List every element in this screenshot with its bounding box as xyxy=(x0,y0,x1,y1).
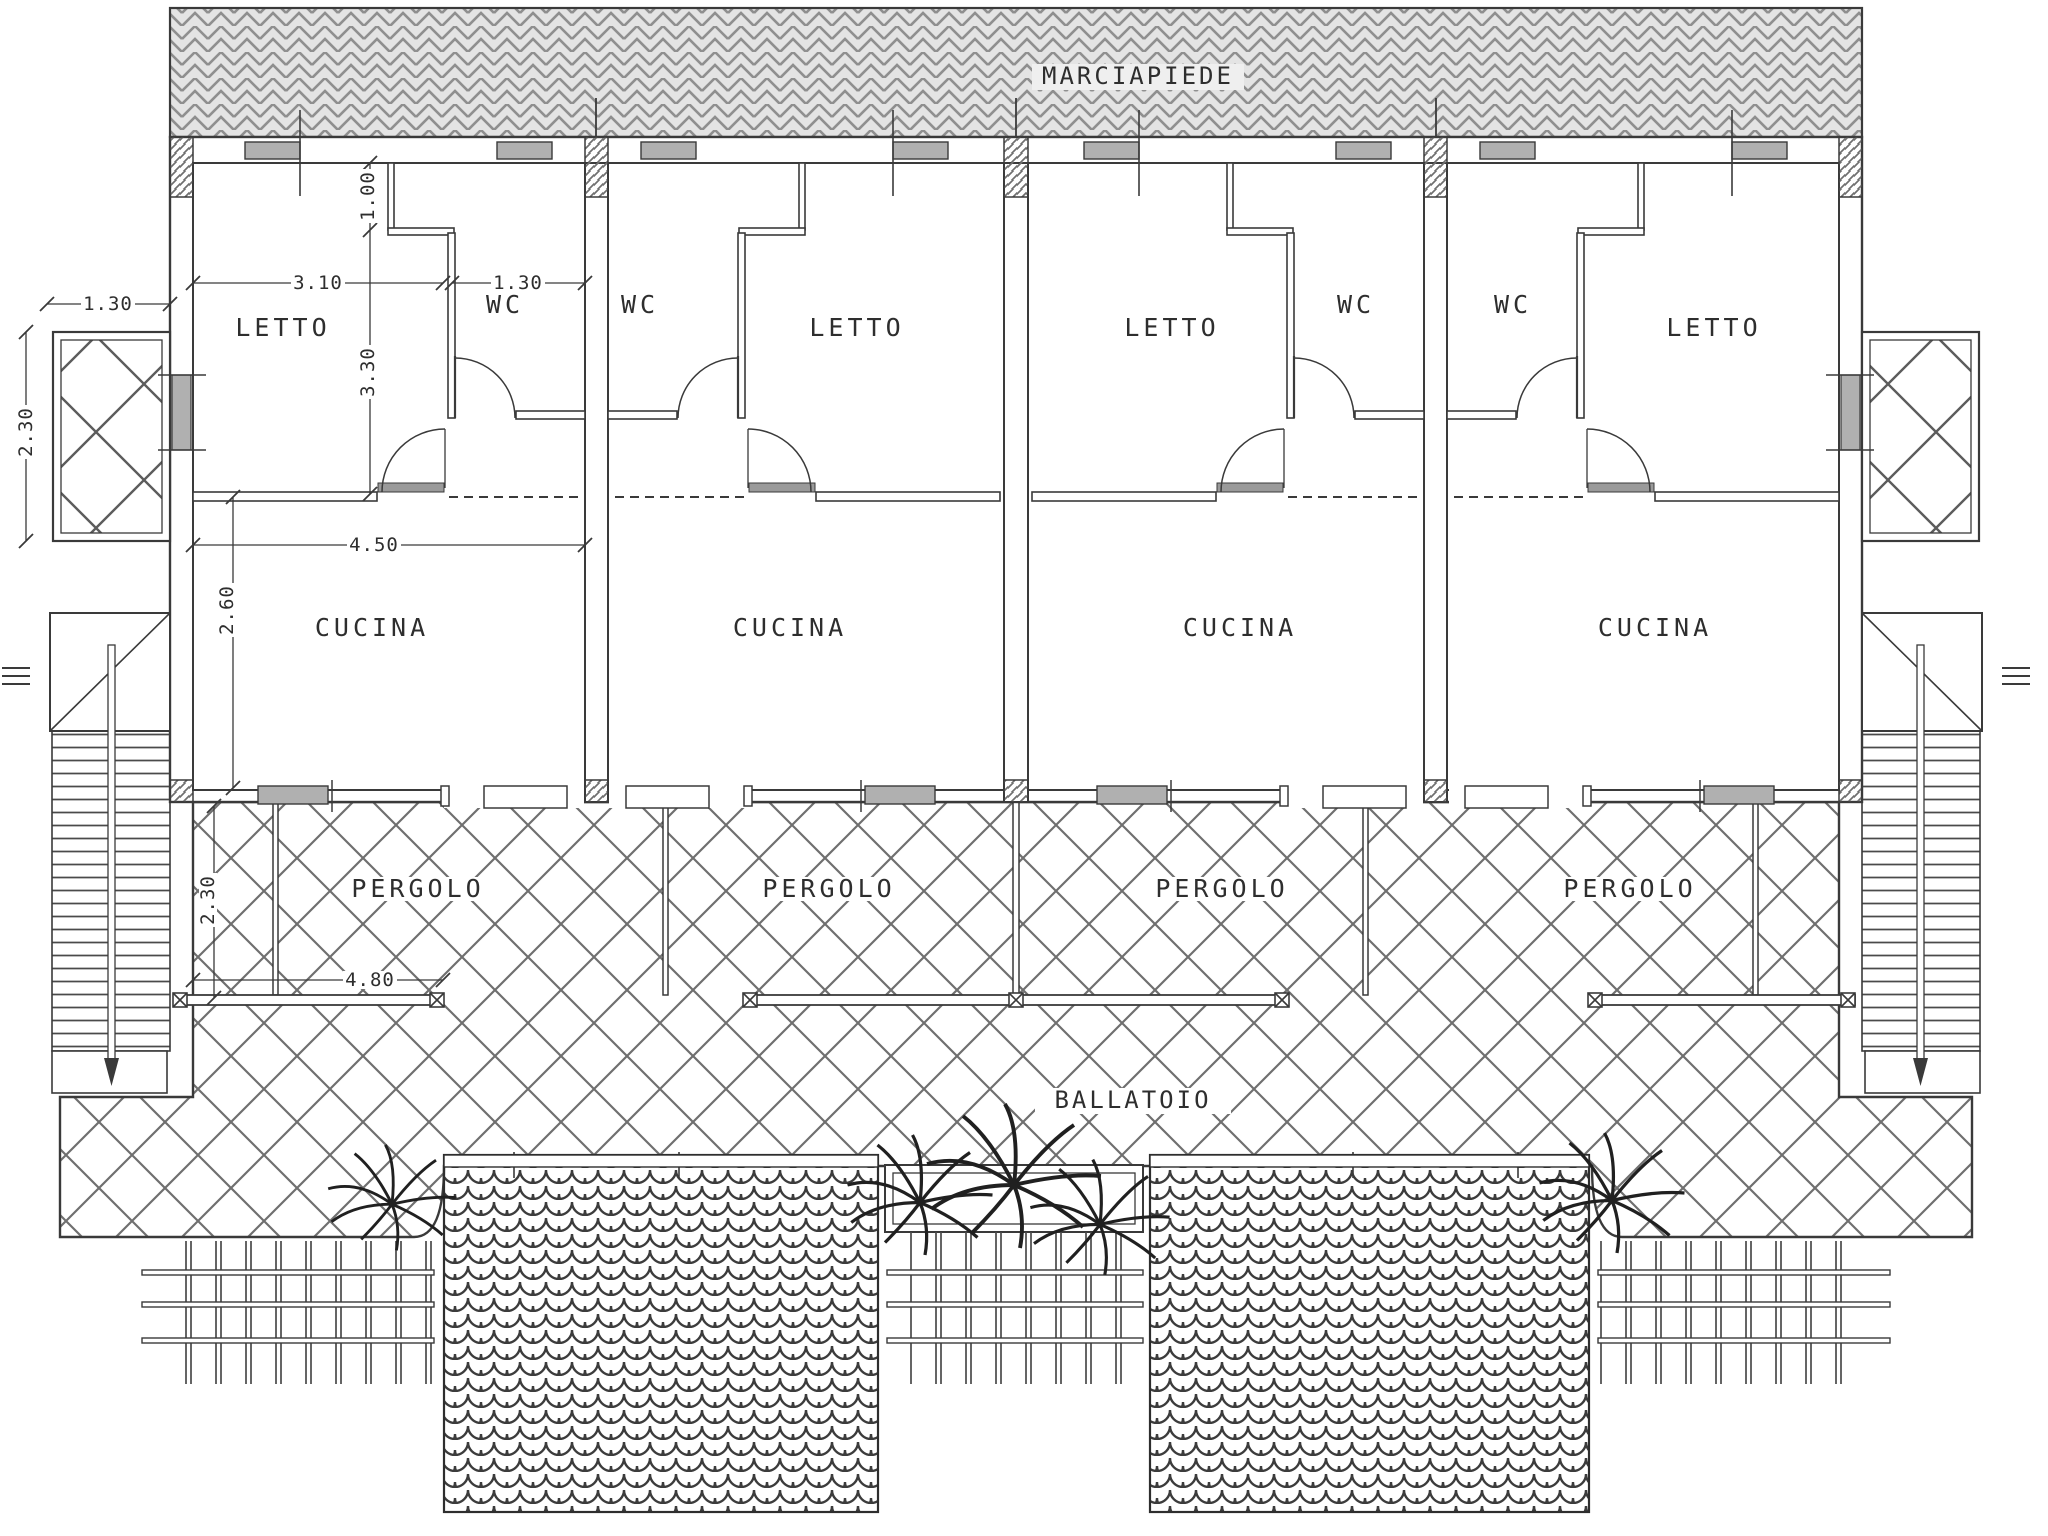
tile-roof-right-edge xyxy=(1150,1155,1589,1167)
party-wall xyxy=(585,163,608,802)
dim-cucina-depth: 2.60 xyxy=(216,585,238,635)
party-wall xyxy=(1424,163,1447,802)
cucina-label-unit-4: CUCINA xyxy=(1598,613,1712,642)
ballatoio-label: BALLATOIO xyxy=(1054,1086,1211,1114)
cucina-label-unit-3: CUCINA xyxy=(1183,613,1297,642)
tile-roof-right xyxy=(1150,1155,1589,1512)
dim-letto-depth: 3.30 xyxy=(357,347,379,397)
cucina-label-unit-1: CUCINA xyxy=(315,613,429,642)
letto-label-unit-2: LETTO xyxy=(809,313,904,342)
party-wall xyxy=(1004,163,1028,802)
building-shell xyxy=(170,137,1862,808)
dim-cucina-width: 4.50 xyxy=(349,534,399,556)
dim-terrace-depth: 2.30 xyxy=(15,407,37,457)
garden-trellis xyxy=(142,1232,1890,1384)
dim-pergolo-depth: 2.30 xyxy=(197,875,219,925)
pergolo-label-unit-1: PERGOLO xyxy=(351,874,484,903)
dim-pergolo-width: 4.80 xyxy=(345,969,395,991)
dim-letto-width: 3.10 xyxy=(293,272,343,294)
trellis-right xyxy=(1598,1241,1860,1384)
tile-roof-left xyxy=(444,1155,878,1512)
floor-plan-drawing: MARCIAPIEDE xyxy=(0,0,2048,1536)
wc-label-unit-1: WC xyxy=(486,290,524,319)
marciapiede-label: MARCIAPIEDE xyxy=(1042,62,1234,90)
dim-terrace-width: 1.30 xyxy=(83,293,133,315)
letto-label-unit-1: LETTO xyxy=(235,313,330,342)
trellis-left xyxy=(172,1241,434,1384)
dim-niche-depth: 1.00 xyxy=(357,171,379,221)
tile-roof-left-edge xyxy=(444,1155,878,1167)
letto-label-unit-4: LETTO xyxy=(1666,313,1761,342)
pergolo-label-unit-3: PERGOLO xyxy=(1155,874,1288,903)
pergolo-label-unit-4: PERGOLO xyxy=(1563,874,1696,903)
wc-label-unit-4: WC xyxy=(1494,290,1532,319)
letto-label-unit-3: LETTO xyxy=(1124,313,1219,342)
wc-label-unit-3: WC xyxy=(1337,290,1375,319)
pergolo-label-unit-2: PERGOLO xyxy=(762,874,895,903)
cucina-label-unit-2: CUCINA xyxy=(733,613,847,642)
sidewalk-area: MARCIAPIEDE xyxy=(170,8,1862,137)
floor-plan-page: MARCIAPIEDE xyxy=(0,0,2048,1536)
wc-label-unit-2: WC xyxy=(621,290,659,319)
